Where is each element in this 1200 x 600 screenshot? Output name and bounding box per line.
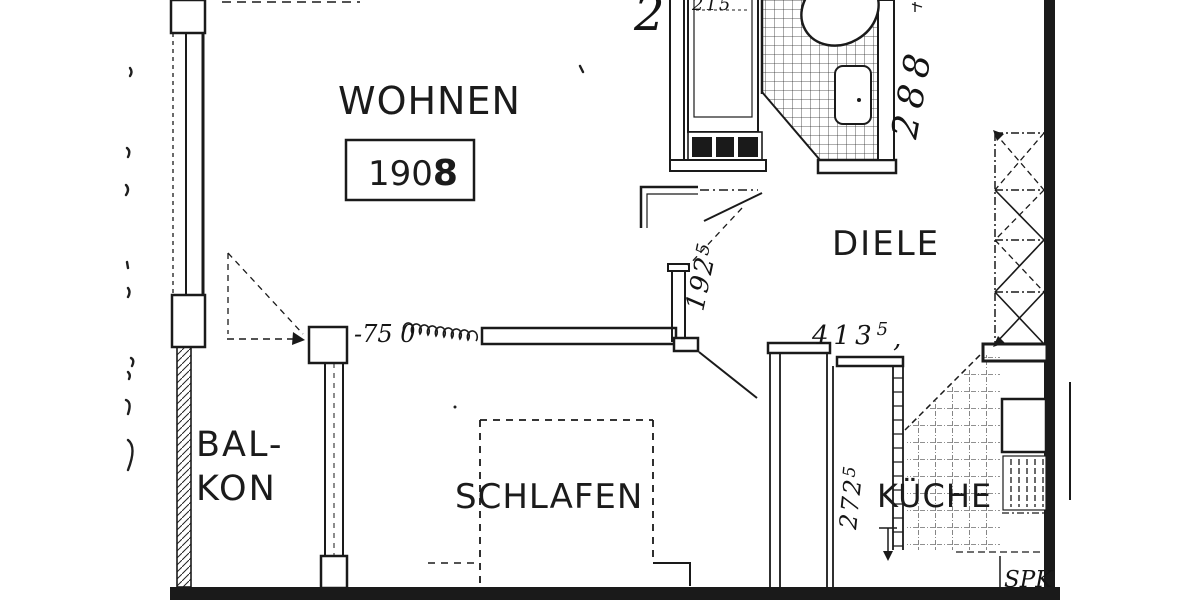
dim-wall-note: -75 0 bbox=[354, 320, 416, 348]
window-post-top bbox=[171, 0, 205, 33]
apartment-number-corrected-digit: 8 bbox=[433, 153, 458, 194]
artifact-dot bbox=[454, 406, 457, 409]
dim-kitchen-height-sup: 5 bbox=[840, 463, 861, 478]
dim-hall-width-main: 413 bbox=[811, 321, 877, 351]
sink-drain-dot bbox=[857, 98, 861, 102]
dim-storey-number: 2 bbox=[633, 0, 665, 42]
bathroom-bottom-wall bbox=[818, 160, 896, 173]
room-label-diele: DIELE bbox=[832, 224, 940, 264]
floorplan-drawing: WOHNEN 1908 DIELE BAL- KON SCHLAFEN KÜCH… bbox=[0, 0, 1200, 600]
balkon-window-post-bottom bbox=[321, 556, 347, 588]
window-post-bottom bbox=[172, 295, 205, 347]
wall-bar-b bbox=[837, 357, 903, 366]
stove-burner-1 bbox=[692, 137, 712, 157]
balkon-door-post bbox=[309, 327, 347, 363]
stove-burner-3 bbox=[738, 137, 758, 157]
balkon-hatched-wall bbox=[177, 347, 191, 587]
label-spk: SPK bbox=[1004, 567, 1054, 593]
floorplan-page: WOHNEN 1908 DIELE BAL- KON SCHLAFEN KÜCH… bbox=[0, 0, 1200, 600]
kitchen-sink-unit bbox=[1002, 399, 1046, 452]
sink bbox=[835, 66, 871, 124]
kitchen-counter bbox=[1003, 456, 1046, 510]
artifact-speck bbox=[127, 262, 128, 268]
center-wall-bar bbox=[482, 328, 676, 344]
kitchen-unit-outline bbox=[688, 0, 758, 132]
dim-hall-width-tail: , bbox=[893, 324, 906, 354]
stove-burner-2 bbox=[716, 137, 734, 157]
room-label-balkon-line1: BAL- bbox=[196, 425, 283, 465]
dim-hall-width-sup: 5 bbox=[877, 319, 893, 340]
wall-notch bbox=[674, 338, 698, 351]
dim-kitchen-height-main: 272 bbox=[834, 476, 867, 531]
apartment-number: 1908 bbox=[368, 153, 458, 194]
counter-edge-bar bbox=[670, 160, 766, 171]
room-label-balkon-line2: KON bbox=[196, 469, 277, 509]
bottom-exterior-wall bbox=[170, 587, 1060, 600]
apartment-number-main: 190 bbox=[368, 154, 433, 194]
dim-unit-width: 215 bbox=[691, 0, 732, 15]
room-label-schlafen: SCHLAFEN bbox=[455, 477, 643, 517]
room-label-kueche: KÜCHE bbox=[877, 477, 992, 515]
room-label-wohnen: WOHNEN bbox=[338, 79, 521, 123]
wall-jog-cap bbox=[668, 264, 689, 271]
